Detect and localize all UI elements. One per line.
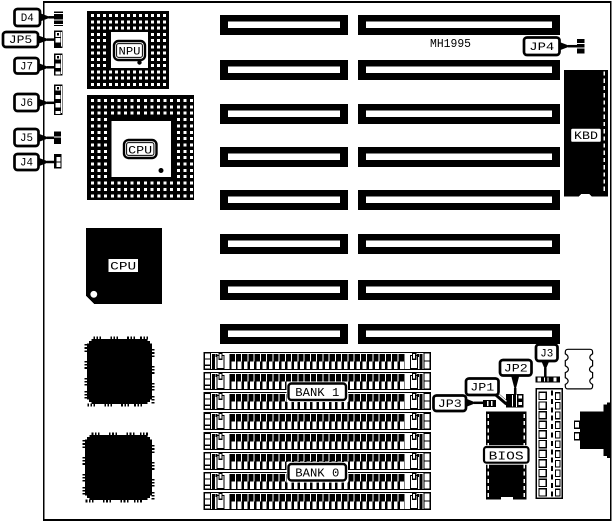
- svg-text:JP1: JP1: [470, 382, 494, 394]
- svg-text:JP3: JP3: [438, 399, 462, 411]
- svg-text:J4: J4: [20, 158, 33, 170]
- svg-text:JP2: JP2: [504, 363, 528, 375]
- svg-text:NPU: NPU: [119, 47, 141, 59]
- svg-text:JP5: JP5: [9, 35, 33, 47]
- svg-text:JP4: JP4: [529, 42, 554, 54]
- svg-text:CPU: CPU: [128, 146, 152, 158]
- svg-text:D4: D4: [21, 13, 34, 25]
- svg-text:KBD: KBD: [574, 131, 598, 143]
- svg-text:BANK 1: BANK 1: [295, 387, 339, 400]
- svg-text:MH1995: MH1995: [430, 38, 471, 51]
- svg-text:BIOS: BIOS: [489, 450, 524, 463]
- svg-text:J6: J6: [20, 98, 33, 110]
- svg-text:BANK 0: BANK 0: [295, 468, 339, 481]
- svg-text:J3: J3: [540, 348, 553, 360]
- svg-text:J7: J7: [20, 61, 33, 73]
- svg-text:CPU: CPU: [110, 262, 136, 274]
- svg-text:J5: J5: [20, 133, 33, 145]
